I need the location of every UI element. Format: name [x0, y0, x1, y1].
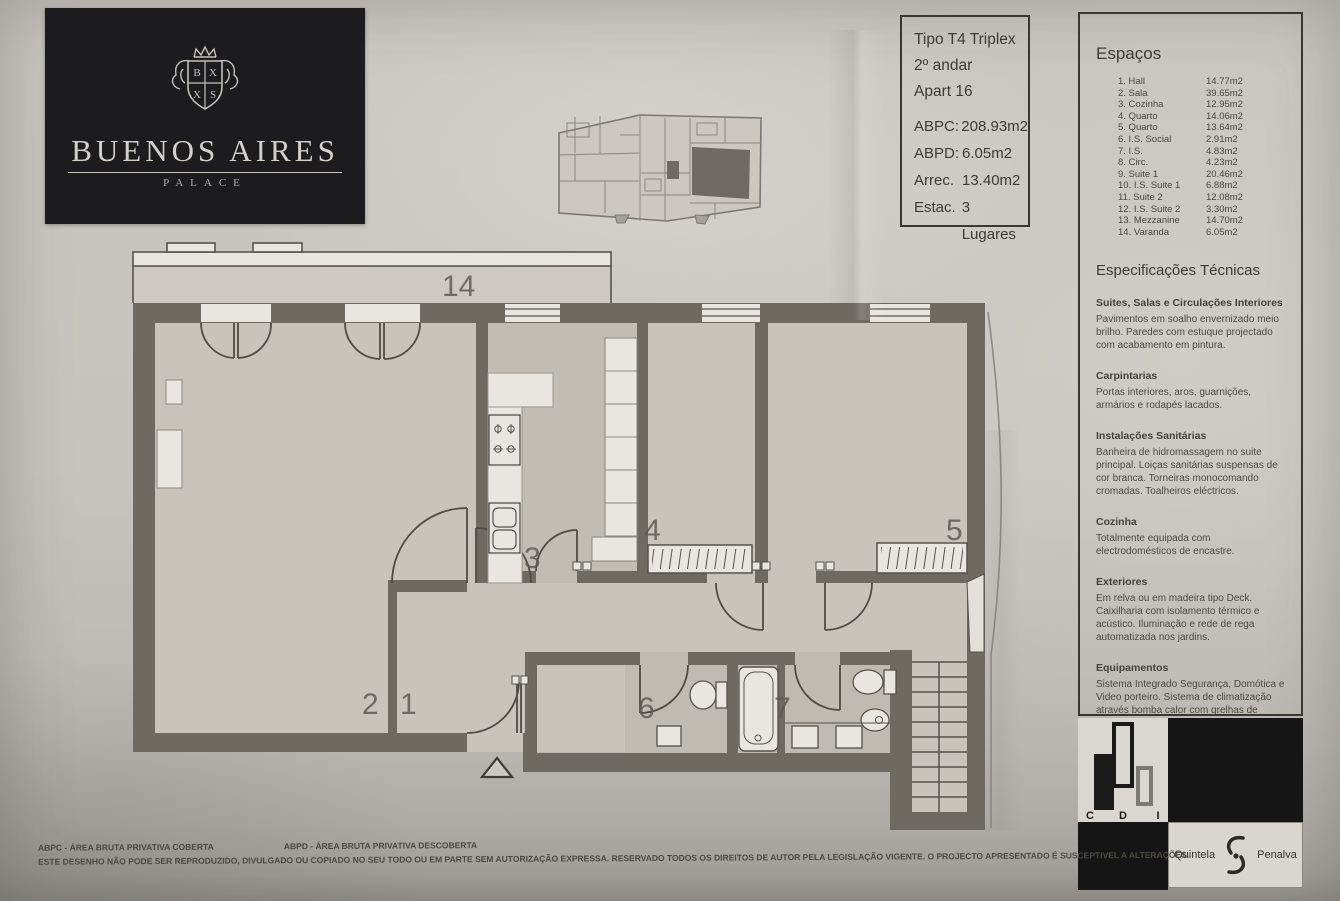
svg-text:X: X [209, 67, 217, 79]
label-is7: 7 [774, 692, 791, 725]
abbr-abpd: ABPD - ÁREA BRUTA PRIVATIVA DESCOBERTA [284, 840, 477, 851]
space-row: 1. Hall14.77m2 [1118, 76, 1287, 88]
spaces-list: 1. Hall14.77m2 2. Sala39.65m2 3. Cozinha… [1118, 76, 1287, 238]
spec-section: Carpintarias Portas interiores, aros, gu… [1096, 370, 1287, 412]
info-value: 13.40m2 [962, 167, 1020, 194]
svg-text:S: S [210, 89, 216, 101]
space-row: 7. I.S.4.83m2 [1118, 146, 1287, 158]
svg-text:B: B [193, 67, 200, 79]
space-row: 8. Circ.4.23m2 [1118, 157, 1287, 169]
info-label: Arrec. [914, 167, 962, 194]
info-label: Estac. [914, 194, 962, 248]
scanned-floorplan-sheet: 14 3 4 5 2 1 6 7 [0, 0, 1340, 901]
penalva-text: Penalva [1257, 849, 1297, 861]
brand-logo-box: BX XS BUENOS AIRES PALACE [45, 8, 365, 224]
space-row: 10. I.S. Suite 16.88m2 [1118, 180, 1287, 192]
label-hall: 1 [400, 688, 417, 721]
space-row: 14. Varanda6.05m2 [1118, 227, 1287, 239]
unit-type: Tipo T4 Triplex [914, 27, 1028, 53]
unit-apartment: Apart 16 [914, 79, 1028, 105]
crest-icon: BX XS [150, 43, 260, 125]
space-row: 2. Sala39.65m2 [1118, 88, 1287, 100]
spec-section: Instalações Sanitárias Banheira de hidro… [1096, 430, 1287, 498]
space-row: 12. I.S. Suite 23.30m2 [1118, 204, 1287, 216]
label-sala: 2 [362, 688, 379, 721]
info-row: Arrec.13.40m2 [914, 167, 1028, 194]
space-row: 9. Suite 120.46m2 [1118, 169, 1287, 181]
info-row: Estac.3 Lugares [914, 194, 1028, 248]
info-label: ABPD: [914, 140, 962, 167]
cdi-letter-c: C [1086, 810, 1094, 822]
label-cozinha: 3 [524, 542, 541, 575]
info-value: 6.05m2 [962, 140, 1012, 167]
space-row: 13. Mezzanine14.70m2 [1118, 215, 1287, 227]
label-is-social: 6 [638, 692, 655, 725]
brand-subtitle: PALACE [163, 177, 247, 189]
space-row: 3. Cozinha12.95m2 [1118, 99, 1287, 111]
specs-title: Especificações Técnicas [1096, 262, 1287, 279]
space-row: 6. I.S. Social2.91m2 [1118, 134, 1287, 146]
entrance-marker [482, 758, 512, 777]
quintela-penalva-icon [1219, 834, 1253, 876]
unit-floor: 2º andar [914, 53, 1028, 79]
unit-info-box: Tipo T4 Triplex 2º andar Apart 16 ABPC:2… [900, 15, 1030, 227]
outer-curve-line [988, 312, 1001, 828]
space-row: 11. Suite 212.08m2 [1118, 192, 1287, 204]
abbr-abpc: ABPC - ÁREA BRUTA PRIVATIVA COBERTA [38, 842, 214, 853]
info-value: 3 Lugares [962, 194, 1028, 248]
space-row: 4. Quarto14.06m2 [1118, 111, 1287, 123]
partner-logos: C D I Quintela Penalva [1078, 718, 1303, 890]
spec-section: Suites, Salas e Circulações Interiores P… [1096, 297, 1287, 352]
spec-section: Exteriores Em relva ou em madeira tipo D… [1096, 576, 1287, 644]
svg-text:X: X [193, 89, 201, 101]
spec-panel: Espaços 1. Hall14.77m2 2. Sala39.65m2 3.… [1078, 12, 1303, 716]
space-row: 5. Quarto13.64m2 [1118, 122, 1287, 134]
info-row: ABPD:6.05m2 [914, 140, 1028, 167]
brand-name: BUENOS AIRES [71, 133, 339, 169]
cdi-logo: C D I [1078, 718, 1168, 822]
spaces-title: Espaços [1096, 44, 1287, 64]
spec-section: Cozinha Totalmente equipada com electrod… [1096, 516, 1287, 558]
label-varanda: 14 [442, 270, 475, 303]
cdi-letter-d: D [1119, 810, 1127, 822]
cdi-letter-i: I [1156, 810, 1159, 822]
label-quarto4: 4 [644, 514, 661, 547]
key-plan [545, 103, 767, 225]
info-value: 208.93m2 [961, 113, 1028, 140]
info-row: ABPC:208.93m2 [914, 113, 1028, 140]
brand-rule [68, 172, 342, 173]
black-tile [1168, 718, 1303, 822]
info-label: ABPC: [914, 113, 961, 140]
label-quarto5: 5 [946, 514, 963, 547]
